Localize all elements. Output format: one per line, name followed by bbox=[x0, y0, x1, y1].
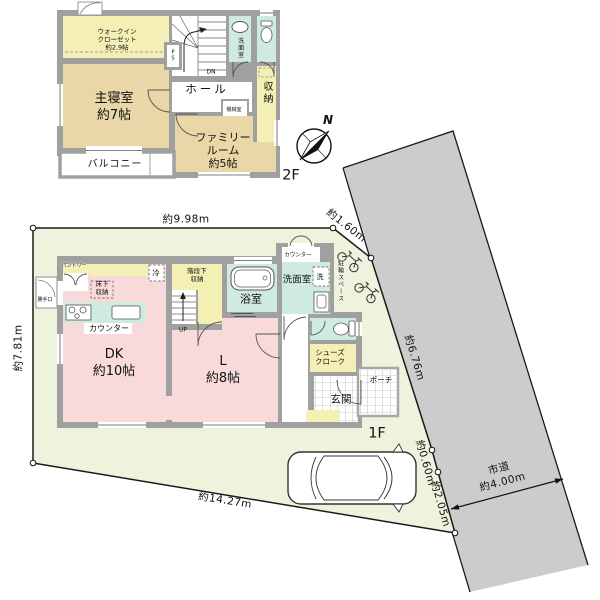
porch bbox=[358, 368, 398, 416]
kitchen-top-counter bbox=[90, 264, 148, 276]
pipe-space bbox=[164, 42, 182, 70]
fridge-space bbox=[149, 265, 164, 281]
kitchen-sink-icon bbox=[112, 306, 140, 319]
sink-icon-2f bbox=[232, 22, 248, 33]
room-shoe-cloak bbox=[310, 344, 356, 372]
back-door bbox=[36, 277, 63, 308]
room-master-bedroom bbox=[63, 64, 169, 148]
floorplan-image: ウォークイン クローゼット 約2.9帖 主寝室 約7帖 バルコニー ホール DN… bbox=[0, 0, 600, 600]
machine-room bbox=[222, 100, 248, 118]
entrance-mat bbox=[306, 410, 340, 422]
bathtub-icon bbox=[231, 267, 274, 290]
under-stair-storage bbox=[172, 264, 222, 290]
vanity-icon bbox=[314, 292, 329, 312]
floor-plan-canvas bbox=[0, 0, 600, 600]
car-icon bbox=[288, 444, 416, 512]
compass-icon bbox=[297, 129, 331, 163]
room-pantry bbox=[63, 264, 90, 273]
toilet-icon-2f bbox=[261, 21, 272, 43]
room-living bbox=[172, 330, 278, 422]
balcony bbox=[60, 152, 174, 177]
stove-icon bbox=[66, 305, 91, 320]
room-family bbox=[175, 116, 253, 172]
washer-space bbox=[313, 267, 329, 286]
floor2-plan bbox=[57, 2, 280, 178]
roof-access-door bbox=[78, 2, 102, 15]
